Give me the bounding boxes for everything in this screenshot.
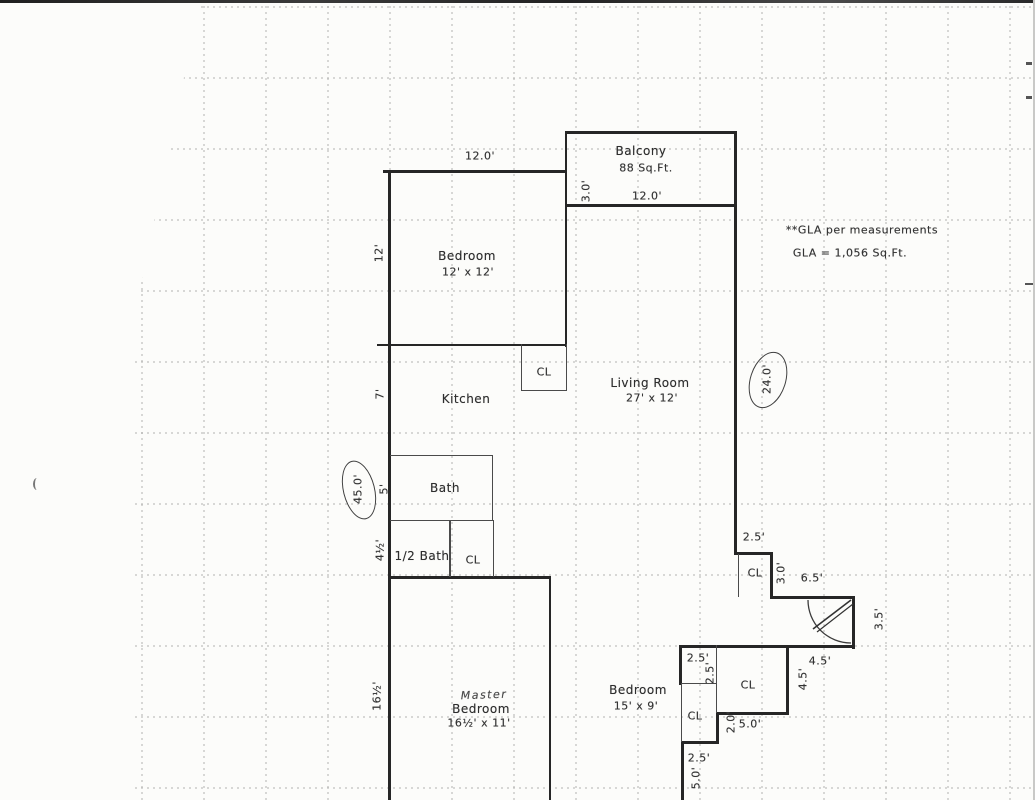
scan-artifact-tick (1026, 96, 1032, 99)
halfbath-closet-label: CL (466, 554, 481, 567)
wall-bedroom-right (565, 204, 567, 347)
wall-balcony-bottom (565, 204, 737, 207)
left-overall-dim: 45.0' (352, 474, 365, 504)
step-height-dim: 2.0' (725, 711, 738, 734)
gla-value: GLA = 1,056 Sq.Ft. (793, 247, 907, 260)
room-label-master: Bedroom (452, 702, 510, 716)
bedroom-top-left-dim: 12' (373, 244, 386, 263)
living-right-dim: 24.0' (761, 364, 774, 394)
room-label-balcony: Balcony (615, 144, 666, 158)
floorplan-page: Balcony 88 Sq.Ft. 12.0' 3.0' 12.0' 12' B… (0, 0, 1035, 800)
room-label-living: Living Room (610, 376, 689, 390)
halfbath-left-dim: 4½' (374, 539, 387, 561)
wall-halfbath-bottom (388, 576, 550, 579)
nook-height-dim: 2.5' (704, 662, 717, 685)
scan-artifact-tick (1025, 283, 1033, 285)
sheet-edge-mask (0, 0, 200, 800)
gla-note: **GLA per measurements (786, 224, 938, 237)
scan-artifact-top-edge (0, 0, 1035, 3)
room-label-bath: Bath (430, 481, 460, 495)
wall-balcony-left (565, 131, 567, 207)
wall-step-bottom (681, 741, 719, 744)
line-kitchen-closet-right (566, 344, 567, 391)
wall-balcony-right (734, 131, 737, 207)
line-bath-right (492, 455, 493, 521)
line-bath-bottom (390, 520, 493, 521)
room-label-kitchen: Kitchen (442, 392, 491, 406)
living-size: 27' x 12' (626, 392, 678, 405)
closet-width-dim: 5.0' (739, 718, 762, 731)
wall-balcony-top (565, 131, 737, 134)
bath-left-dim: 5' (378, 483, 391, 494)
lower-height-dim: 5.0' (690, 767, 703, 790)
lower-width-dim: 2.5' (688, 752, 711, 765)
master-left-dim: 16½' (371, 681, 384, 711)
entry-dim-b: 4.5' (797, 668, 810, 691)
line-small-closet-left (681, 683, 682, 742)
wall-bedroom-divider (549, 576, 551, 800)
scan-artifact-squiggle (33, 478, 41, 490)
bedroom-right-size: 15' x 9' (614, 700, 659, 713)
wall-main-right (734, 204, 737, 555)
scan-artifact-tick (1026, 62, 1032, 65)
wall-step-left (716, 712, 719, 744)
balcony-area-label: 88 Sq.Ft. (619, 162, 673, 175)
room-label-halfbath: 1/2 Bath (394, 549, 449, 563)
wall-entry-jog-top (734, 552, 773, 555)
entry-dim-a: 4.5' (809, 655, 832, 668)
line-kitchen-closet-bottom (521, 390, 567, 391)
kitchen-left-dim: 7' (374, 388, 387, 399)
master-size: 16½' x 11' (447, 717, 510, 730)
line-kitchen-closet-left (521, 344, 522, 391)
bedroom-right-small-closet-label: CL (688, 710, 703, 723)
balcony-depth-dim: 3.0' (580, 180, 593, 203)
line-bath-top (390, 455, 493, 456)
wall-kitchen-top (377, 344, 567, 346)
bedroom-top-width-dim: 12.0' (465, 150, 495, 163)
room-label-bedroom-right: Bedroom (609, 683, 667, 697)
entry-jog-dim: 2.5' (743, 531, 766, 544)
wall-lower-left (681, 741, 684, 800)
line-entry-closet-left (738, 554, 739, 597)
wall-entry-closet-right (770, 552, 773, 599)
grid-paper (0, 0, 1035, 800)
wall-bedroom-top (383, 170, 567, 173)
entry-door-swing-icon (780, 590, 870, 660)
entry-closet-depth-dim: 3.0' (775, 562, 788, 585)
hall-width-dim: 6.5' (801, 572, 824, 585)
entry-closet-label: CL (748, 567, 763, 580)
wall-nook-left (679, 645, 682, 685)
bedroom-right-closet-label: CL (741, 679, 756, 692)
bedroom-top-size: 12' x 12' (442, 266, 494, 279)
kitchen-closet-label: CL (537, 366, 552, 379)
line-halfbath-closet-right (493, 520, 494, 577)
balcony-width-dim: 12.0' (632, 190, 662, 203)
entry-door-dim: 3.5' (873, 608, 886, 631)
room-label-bedroom-top: Bedroom (438, 249, 496, 263)
master-handwritten-note: Master (460, 688, 507, 703)
